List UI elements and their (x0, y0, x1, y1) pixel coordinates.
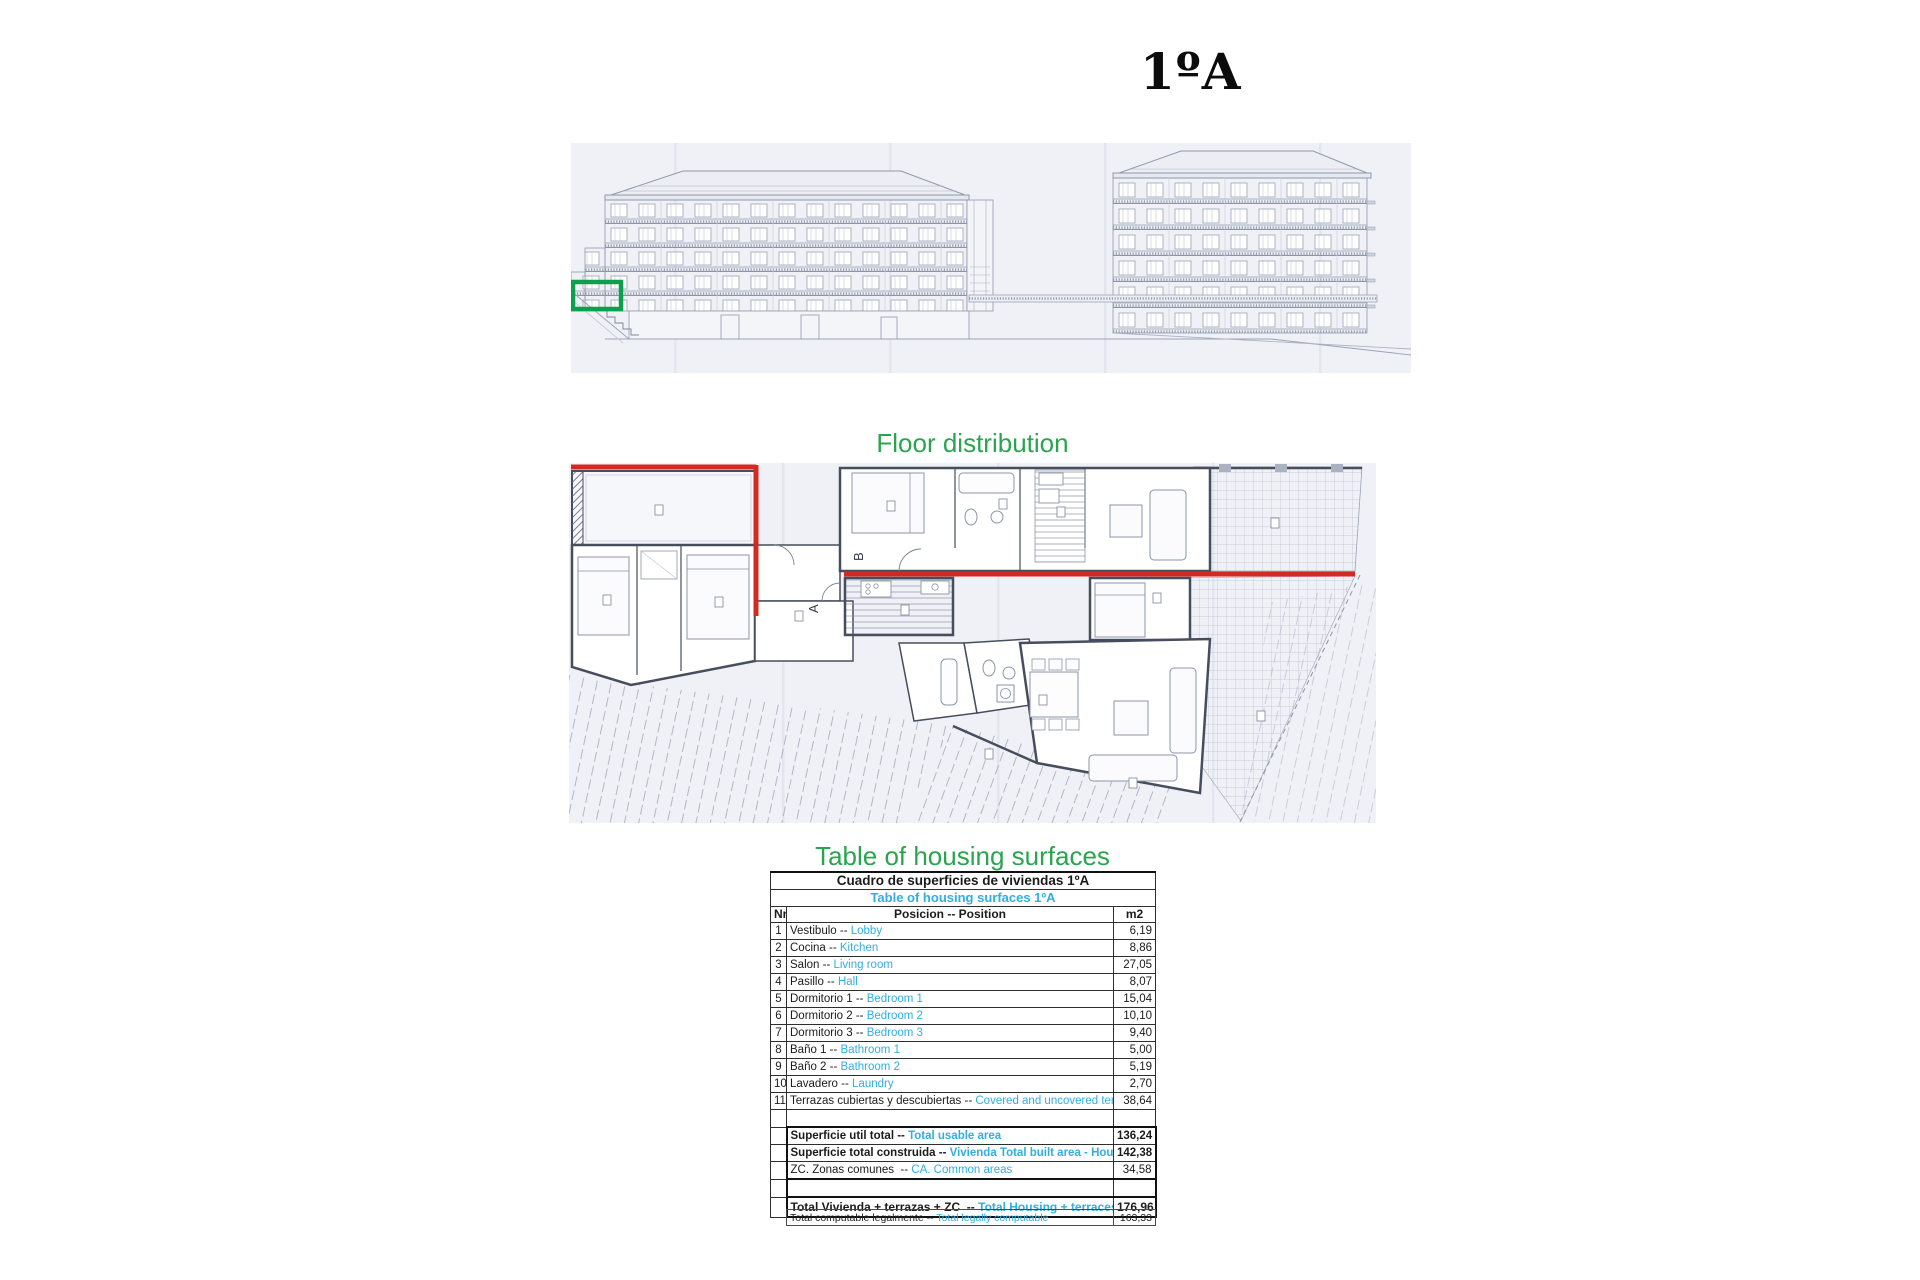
row-area: 6,19 (1114, 923, 1156, 940)
row-number: 9 (771, 1059, 787, 1076)
building-elevation-svg (571, 143, 1411, 373)
row-position: Dormitorio 2 -- Bedroom 2 (787, 1008, 1114, 1025)
table-header-english: Table of housing surfaces 1ºA (771, 890, 1156, 907)
total-position: Superficie util total -- Total usable ar… (787, 1127, 1114, 1145)
separator: -- (853, 1010, 867, 1022)
separator: -- (824, 976, 838, 988)
table-header-spanish: Cuadro de superficies de viviendas 1ºA (771, 872, 1156, 890)
neighbour-flat-b (840, 468, 1210, 571)
table-row: 7 Dormitorio 3 -- Bedroom 3 9,40 (771, 1025, 1156, 1042)
separator: -- (826, 942, 840, 954)
empty-row (771, 1110, 1156, 1128)
separator: -- (838, 1078, 852, 1090)
row-area: 15,04 (1114, 991, 1156, 1008)
separator: -- (819, 959, 833, 971)
row-area: 8,07 (1114, 974, 1156, 991)
total-row: ZC. Zonas comunes -- CA. Common areas 34… (771, 1162, 1156, 1180)
total-row: Superficie util total -- Total usable ar… (771, 1127, 1156, 1145)
spacer-section (771, 1110, 1156, 1128)
separator: -- (936, 1147, 950, 1159)
room-rows: 1 Vestibulo -- Lobby 6,19 2 Cocina -- Ki… (771, 923, 1156, 1110)
separator: -- (961, 1095, 975, 1107)
row-position: Vestibulo -- Lobby (787, 923, 1114, 940)
row-area: 8,86 (1114, 940, 1156, 957)
table-row: 10 Lavadero -- Laundry 2,70 (771, 1076, 1156, 1093)
total-area: 34,58 (1114, 1162, 1156, 1180)
row-area: 38,64 (1114, 1093, 1156, 1110)
kitchen-room (845, 578, 953, 635)
row-number: 10 (771, 1076, 787, 1093)
row-position: Dormitorio 3 -- Bedroom 3 (787, 1025, 1114, 1042)
total-area: 142,38 (1114, 1145, 1156, 1162)
row-number: 7 (771, 1025, 787, 1042)
separator: -- (853, 1027, 867, 1039)
surface-table-title: Table of housing surfaces (770, 841, 1155, 872)
separator: -- (894, 1130, 908, 1142)
row-position: Cocina -- Kitchen (787, 940, 1114, 957)
row-position: Lavadero -- Laundry (787, 1076, 1114, 1093)
facade-floors (571, 178, 1377, 333)
column-header-position: Posicion -- Position (787, 907, 1114, 923)
table-row: 5 Dormitorio 1 -- Bedroom 1 15,04 (771, 991, 1156, 1008)
separator: -- (897, 1164, 911, 1176)
legal-total-row: Total computable legalmente -- Total leg… (786, 1209, 1156, 1226)
building-elevation-drawing (571, 143, 1411, 373)
row-position: Pasillo -- Hall (787, 974, 1114, 991)
floor-plan-drawing: A B (569, 463, 1376, 823)
separator: -- (826, 1044, 840, 1056)
total-position: Superficie total construida -- Vivienda … (787, 1145, 1114, 1162)
separator: -- (853, 993, 867, 1005)
bedrooms-block (572, 545, 755, 685)
separator: -- (826, 1061, 840, 1073)
table-row: 4 Pasillo -- Hall 8,07 (771, 974, 1156, 991)
row-number: 5 (771, 991, 787, 1008)
row-area: 2,70 (1114, 1076, 1156, 1093)
hall-corridor (755, 545, 853, 661)
separator: -- (924, 1212, 937, 1224)
row-number: 2 (771, 940, 787, 957)
row-area: 5,19 (1114, 1059, 1156, 1076)
table-header: Cuadro de superficies de viviendas 1ºA T… (771, 872, 1156, 923)
column-header-m2: m2 (1114, 907, 1156, 923)
table-row: 8 Baño 1 -- Bathroom 1 5,00 (771, 1042, 1156, 1059)
unit-title: 1ºA (1140, 42, 1242, 101)
row-position: Salon -- Living room (787, 957, 1114, 974)
row-area: 9,40 (1114, 1025, 1156, 1042)
document-page: 1ºA (0, 0, 1920, 1280)
totals-rows: Superficie util total -- Total usable ar… (771, 1127, 1156, 1179)
terrace-room (572, 471, 755, 545)
table-row: 9 Baño 2 -- Bathroom 2 5,19 (771, 1059, 1156, 1076)
table-row: 3 Salon -- Living room 27,05 (771, 957, 1156, 974)
row-number: 3 (771, 957, 787, 974)
surface-table: Cuadro de superficies de viviendas 1ºA T… (770, 871, 1155, 1218)
row-number: 8 (771, 1042, 787, 1059)
legal-total: Total computable legalmente -- Total leg… (787, 1210, 1156, 1226)
floor-plan-svg: A B (569, 463, 1376, 823)
block-label-b: B (851, 552, 866, 561)
row-position: Baño 2 -- Bathroom 2 (787, 1059, 1114, 1076)
table-row: 2 Cocina -- Kitchen 8,86 (771, 940, 1156, 957)
row-position: Baño 1 -- Bathroom 1 (787, 1042, 1114, 1059)
separator: -- (837, 925, 851, 937)
empty-row (771, 1179, 1156, 1197)
row-area: 5,00 (1114, 1042, 1156, 1059)
block-label-a: A (806, 604, 821, 613)
row-position: Terrazas cubiertas y descubiertas -- Cov… (787, 1093, 1114, 1110)
total-position: ZC. Zonas comunes -- CA. Common areas (787, 1162, 1114, 1180)
row-area: 10,10 (1114, 1008, 1156, 1025)
floor-plan-title: Floor distribution (569, 428, 1376, 459)
row-position: Dormitorio 1 -- Bedroom 1 (787, 991, 1114, 1008)
row-number: 1 (771, 923, 787, 940)
row-area: 27,05 (1114, 957, 1156, 974)
table-row: 11 Terrazas cubiertas y descubiertas -- … (771, 1093, 1156, 1110)
row-number: 6 (771, 1008, 787, 1025)
middle-bedroom (1090, 578, 1190, 640)
table-row: 6 Dormitorio 2 -- Bedroom 2 10,10 (771, 1008, 1156, 1025)
column-header-nr: Nr (771, 907, 787, 923)
table-row: 1 Vestibulo -- Lobby 6,19 (771, 923, 1156, 940)
row-number: 4 (771, 974, 787, 991)
total-row: Superficie total construida -- Vivienda … (771, 1145, 1156, 1162)
total-area: 136,24 (1114, 1127, 1156, 1145)
row-number: 11 (771, 1093, 787, 1110)
